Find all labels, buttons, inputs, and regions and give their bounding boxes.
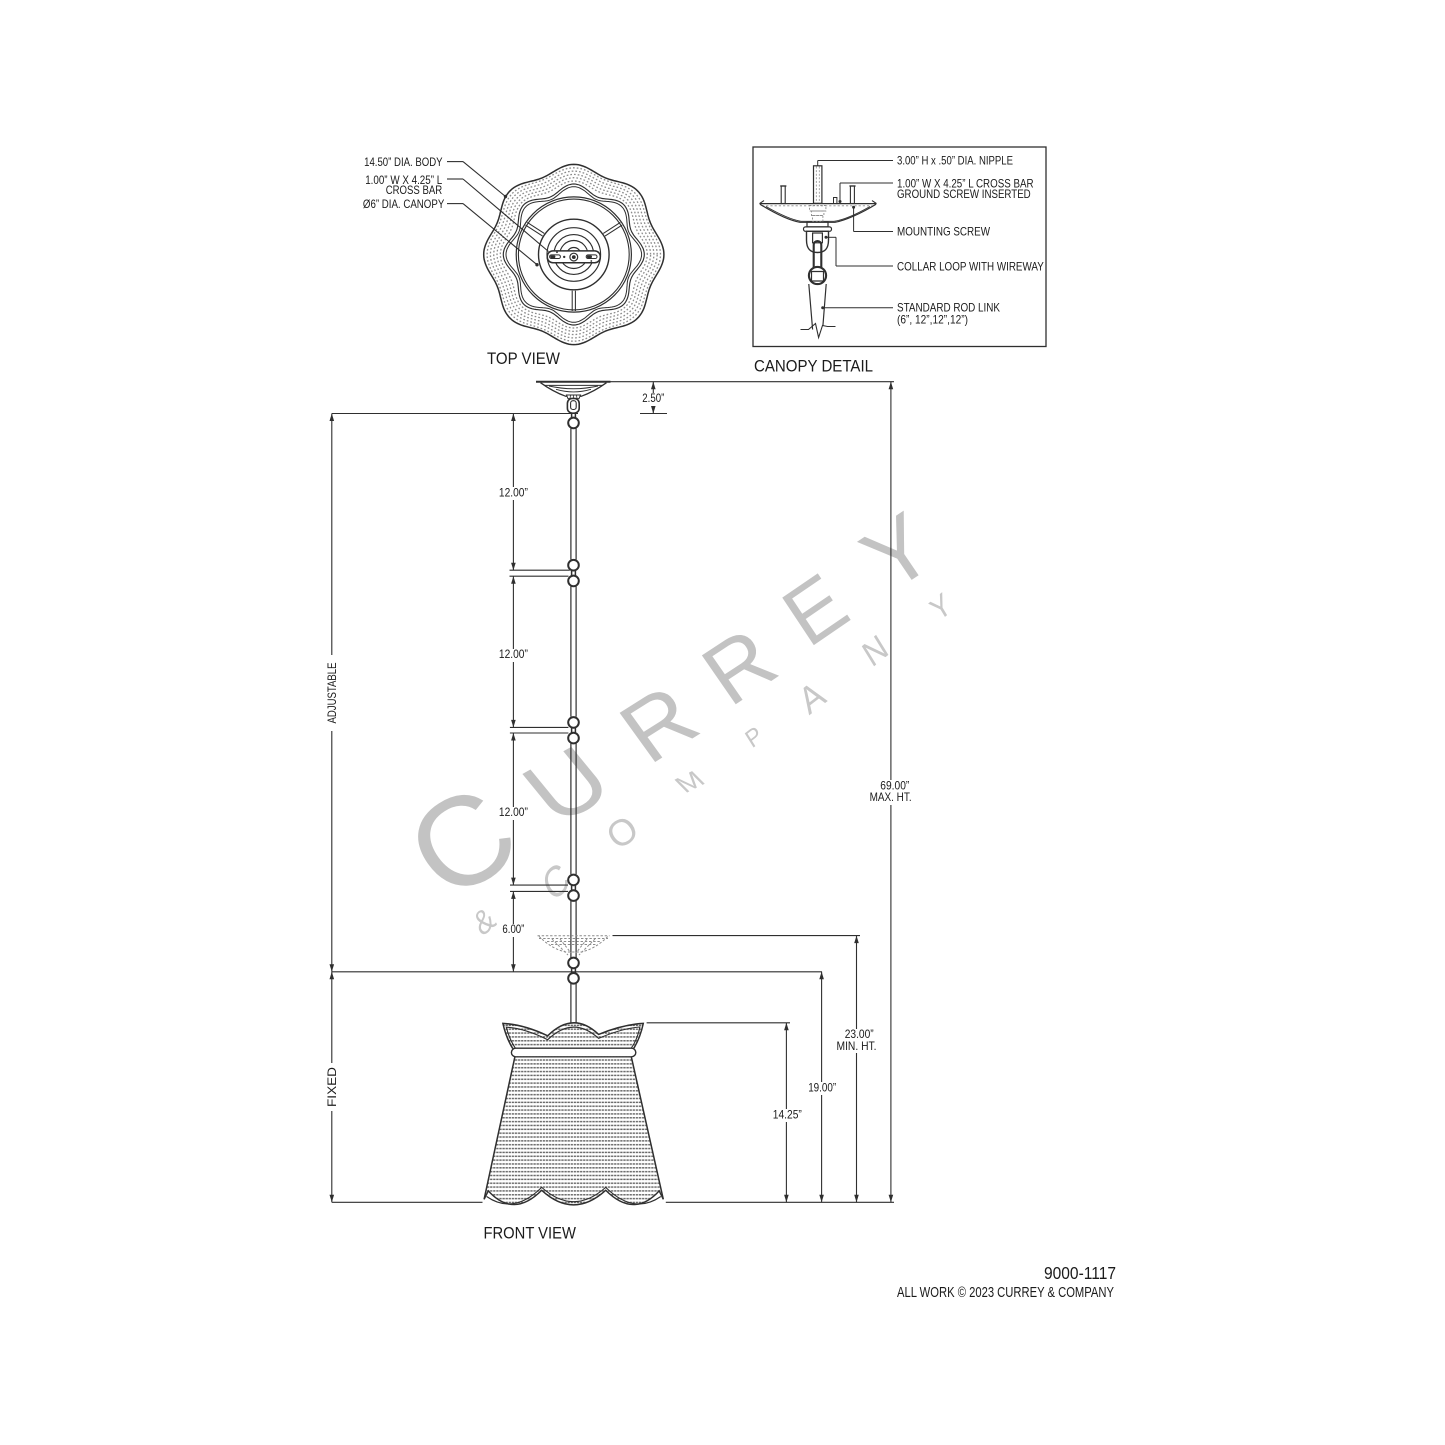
svg-text:12.00”: 12.00” <box>499 486 528 500</box>
svg-text:Ø6” DIA. CANOPY: Ø6” DIA. CANOPY <box>363 197 444 211</box>
svg-text:CROSS BAR: CROSS BAR <box>386 183 443 197</box>
svg-text:MOUNTING SCREW: MOUNTING SCREW <box>897 225 991 239</box>
svg-text:19.00”: 19.00” <box>808 1081 836 1095</box>
svg-text:GROUND SCREW INSERTED: GROUND SCREW INSERTED <box>897 187 1031 201</box>
svg-text:FIXED: FIXED <box>325 1067 339 1107</box>
svg-text:MAX. HT.: MAX. HT. <box>870 790 912 804</box>
svg-text:TOP VIEW: TOP VIEW <box>487 349 560 368</box>
svg-text:12.00”: 12.00” <box>499 805 528 819</box>
svg-text:9000-1117: 9000-1117 <box>1044 1263 1116 1283</box>
svg-text:ADJUSTABLE: ADJUSTABLE <box>325 663 339 724</box>
svg-text:14.50” DIA. BODY: 14.50” DIA. BODY <box>364 155 443 169</box>
svg-text:MIN. HT.: MIN. HT. <box>837 1039 877 1053</box>
svg-text:2.50”: 2.50” <box>642 391 664 405</box>
svg-text:ALL WORK © 2023 CURREY & COMPA: ALL WORK © 2023 CURREY & COMPANY <box>897 1284 1114 1301</box>
svg-text:6.00”: 6.00” <box>502 922 524 936</box>
svg-text:(6”, 12”,12”,12”): (6”, 12”,12”,12”) <box>897 313 968 327</box>
svg-text:CANOPY DETAIL: CANOPY DETAIL <box>754 357 873 376</box>
svg-text:12.00”: 12.00” <box>499 647 528 661</box>
svg-text:14.25”: 14.25” <box>773 1108 802 1122</box>
svg-text:COLLAR LOOP WITH WIREWAY: COLLAR LOOP WITH WIREWAY <box>897 260 1044 274</box>
svg-text:FRONT VIEW: FRONT VIEW <box>484 1224 576 1243</box>
svg-text:3.00” H x .50” DIA. NIPPLE: 3.00” H x .50” DIA. NIPPLE <box>897 154 1013 168</box>
